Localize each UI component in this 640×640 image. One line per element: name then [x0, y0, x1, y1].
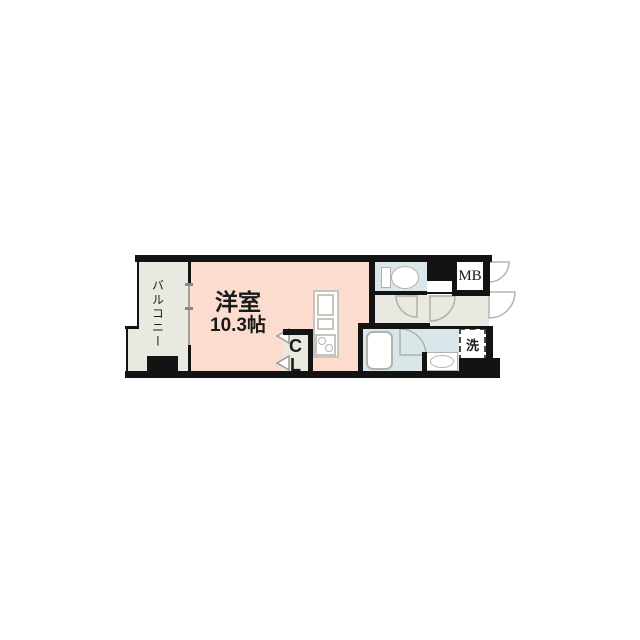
main-room-name: 洋室 [173, 290, 303, 315]
entrance-door-arc [489, 292, 515, 318]
bottom-right-wall-block [459, 358, 500, 375]
bathroom-top-wall [358, 323, 430, 329]
hall-door-arc [430, 296, 455, 321]
bathroom-left-wall [358, 323, 363, 378]
entrance-door-arc [489, 262, 509, 282]
hall-bottom-line [430, 326, 486, 329]
window-tick [185, 283, 193, 286]
washroom-divider-wall [422, 352, 427, 378]
window-wall-top [188, 262, 191, 283]
shaft-bottom-line [427, 292, 453, 294]
closet-right-wall [308, 329, 313, 378]
room-right-wall [369, 262, 375, 329]
closet-door-marker-icon [277, 356, 289, 370]
toilet-bottom-wall [375, 291, 427, 295]
balcony-label: バルコニー [146, 268, 170, 360]
main-room-size: 10.3帖 [173, 315, 303, 337]
window-wall-bottom [188, 345, 191, 372]
main-room-label: 洋室 10.3帖 [173, 290, 303, 337]
meter-box-bottom-wall [452, 290, 490, 296]
floorplan-canvas: MB 洗 C L [0, 0, 640, 640]
top-wall [135, 255, 492, 262]
toilet-door-arc [396, 296, 417, 317]
door-swing-overlay [0, 0, 640, 640]
